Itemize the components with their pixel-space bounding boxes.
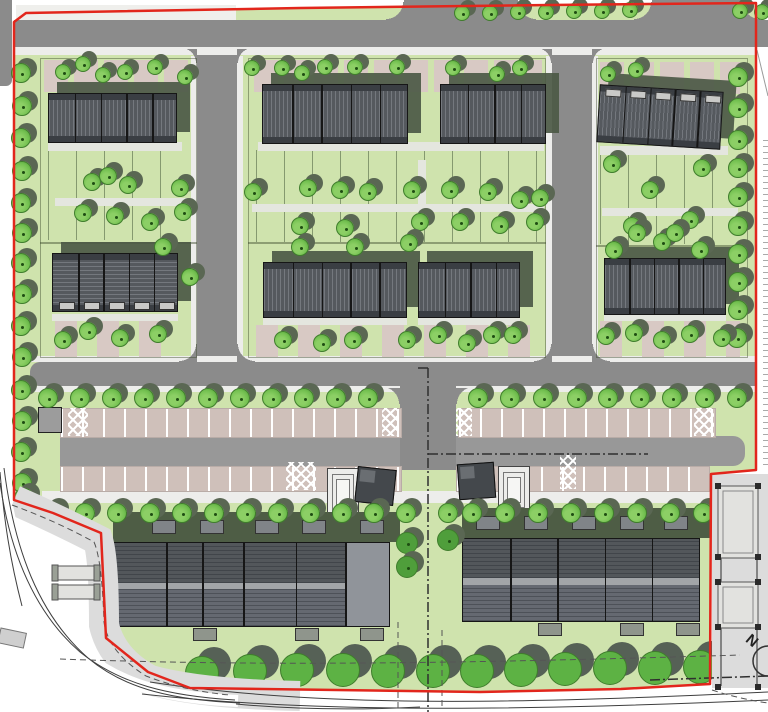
dashed-line-1 [60, 655, 740, 663]
footbridge-post [715, 684, 721, 690]
shelter-cap [94, 584, 100, 600]
footbridge-post [755, 684, 761, 690]
footbridge-post [755, 624, 761, 630]
footbridge-post [755, 579, 761, 585]
site-plan: N [0, 0, 768, 712]
footbridge-post [715, 624, 721, 630]
bus-shelter-1 [58, 566, 94, 580]
footbridge-post [715, 483, 721, 489]
footbridge-post [755, 554, 761, 560]
shelter-cap [52, 565, 58, 581]
shelter-cap [94, 565, 100, 581]
footbridge-deck-1 [718, 486, 758, 558]
footbridge-post [755, 483, 761, 489]
footbridge-deck-2 [718, 582, 758, 628]
crosswalk [0, 628, 26, 648]
footbridge-post [715, 579, 721, 585]
boundary-notch-line [757, 50, 768, 96]
red-line-boundary [14, 3, 756, 692]
bus-shelter-2 [58, 585, 94, 599]
footbridge-post [715, 554, 721, 560]
linework-layer: N [0, 0, 768, 712]
shelter-cap [52, 584, 58, 600]
